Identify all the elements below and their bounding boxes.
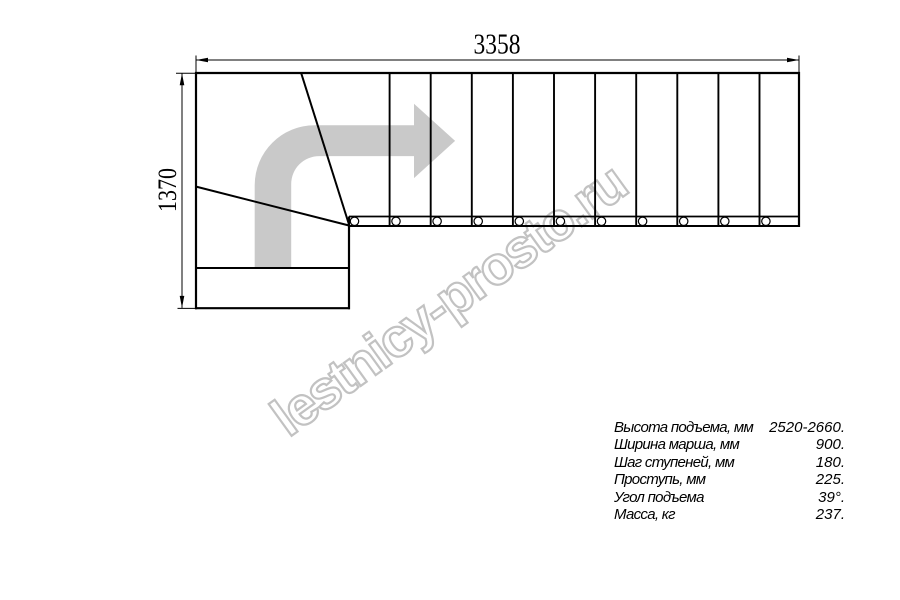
svg-text:1370: 1370 — [153, 168, 182, 212]
svg-text:3358: 3358 — [474, 30, 521, 61]
svg-text:lestnicy-prosto.ru: lestnicy-prosto.ru — [260, 152, 638, 448]
